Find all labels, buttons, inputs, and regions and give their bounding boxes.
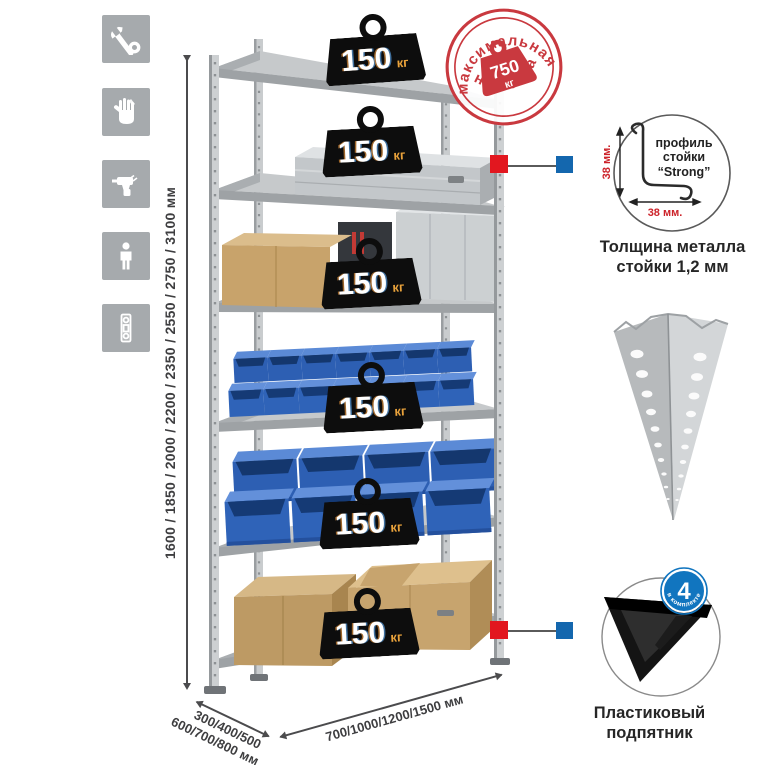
load-value: 150 xyxy=(338,392,390,425)
weight-badge-shelf-1: 150кг xyxy=(322,11,427,87)
weight-badge-shelf-2: 150кг xyxy=(319,103,422,177)
load-value: 150 xyxy=(334,618,386,651)
load-unit: кг xyxy=(392,279,405,295)
foot-detail-circle: 4 в комплекте xyxy=(592,565,732,705)
profile-label-line3: “Strong” xyxy=(658,165,711,179)
callout-marker-red-bottom xyxy=(490,621,508,639)
load-unit: кг xyxy=(393,147,406,163)
thickness-caption: Толщина металла стойки 1,2 мм xyxy=(590,237,755,277)
callout-marker-blue-bottom xyxy=(556,622,573,639)
foot-caption: Пластиковый подпятник xyxy=(572,703,727,743)
load-unit: кг xyxy=(396,54,409,70)
metal-post-image xyxy=(596,302,746,532)
weight-badge-shelf-3: 150кг xyxy=(318,235,421,309)
callout-marker-red-top xyxy=(490,155,508,173)
thickness-caption-line1: Толщина металла xyxy=(590,237,755,257)
load-value: 150 xyxy=(337,136,389,169)
load-unit: кг xyxy=(390,629,403,645)
foot-caption-line1: Пластиковый xyxy=(572,703,727,723)
load-unit: кг xyxy=(390,519,403,535)
load-unit: кг xyxy=(394,403,407,419)
callout-marker-blue-top xyxy=(556,156,573,173)
thickness-caption-line2: стойки 1,2 мм xyxy=(590,257,755,277)
weight-badge-shelf-5: 150кг xyxy=(316,475,419,549)
shelving-infographic: 1600 / 1850 / 2000 / 2200 / 2350 / 2550 … xyxy=(0,0,765,765)
profile-label-line1: профиль xyxy=(655,136,712,150)
weight-badge-shelf-6: 150кг xyxy=(316,585,419,659)
weight-badge-shelf-4: 150кг xyxy=(320,359,423,433)
profile-dim-horizontal: 38 мм. xyxy=(648,207,683,219)
foot-caption-line2: подпятник xyxy=(572,723,727,743)
profile-dim-vertical: 38 мм. xyxy=(601,145,613,180)
load-value: 150 xyxy=(336,268,388,301)
count-badge: 4 в комплекте xyxy=(661,568,707,614)
load-value: 150 xyxy=(340,43,392,76)
load-value: 150 xyxy=(334,508,386,541)
profile-label-line2: стойки xyxy=(663,150,705,164)
profile-detail-circle: 38 мм. 38 мм. профиль стойки “Strong” xyxy=(597,98,747,248)
